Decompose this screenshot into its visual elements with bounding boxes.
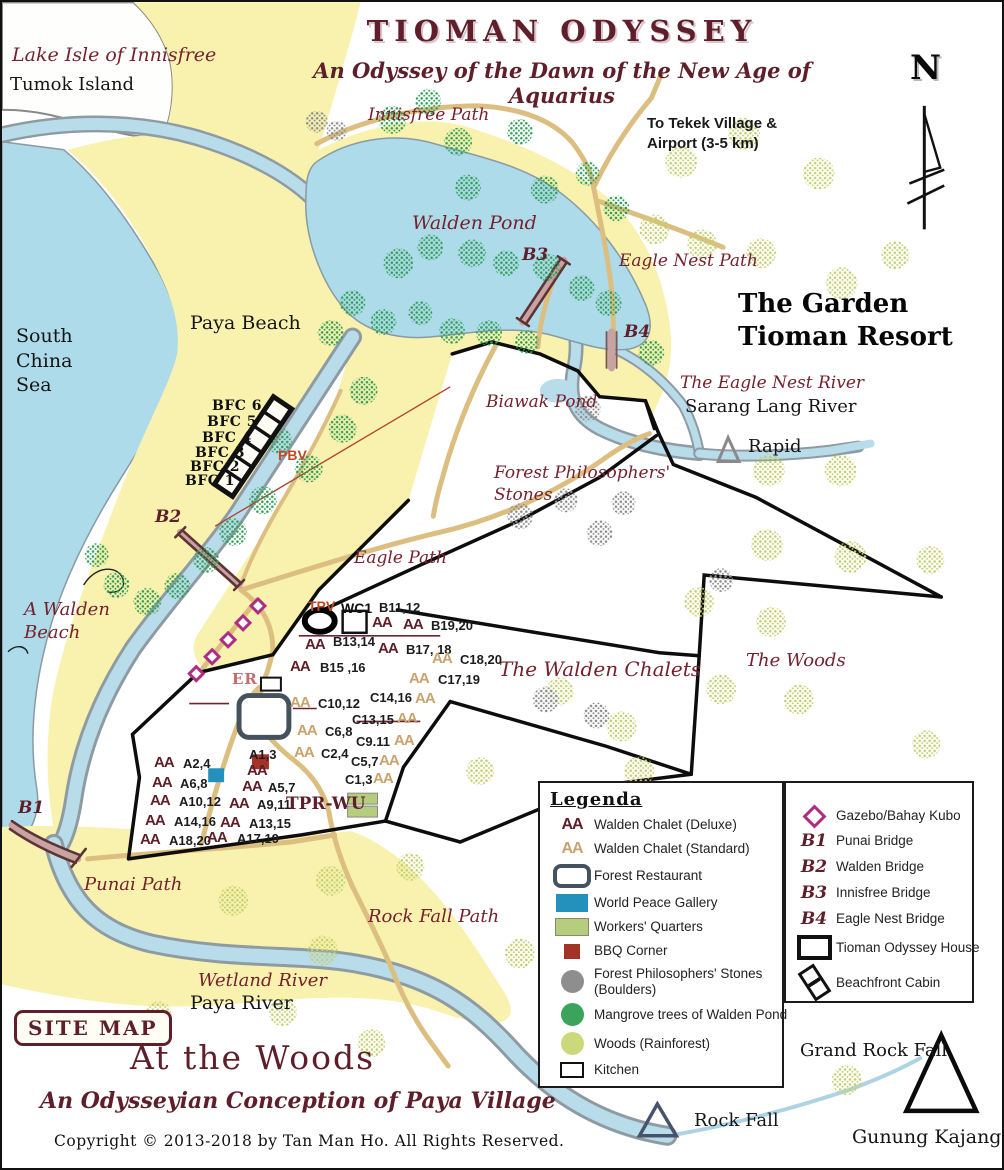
legend-label: Walden Chalet (Deluxe) — [594, 817, 737, 833]
world-peace-gallery-icon — [208, 768, 224, 782]
forest-restaurant-icon — [239, 696, 289, 738]
legend-label: BBQ Corner — [594, 943, 668, 959]
boulder-icon — [561, 970, 584, 993]
legend-item-deluxe-chalet: AAWalden Chalet (Deluxe) — [550, 816, 776, 834]
woods-icon — [561, 1032, 584, 1055]
legend-box: Legenda AAWalden Chalet (Deluxe)AAWalden… — [538, 781, 784, 1088]
legend-item-standard-chalet: AAWalden Chalet (Standard) — [550, 840, 776, 858]
standard-chalet-icon: AA — [561, 840, 582, 858]
legend-item-forest-restaurant: Forest Restaurant — [550, 864, 776, 888]
legend-item-world-peace-gallery: World Peace Gallery — [550, 894, 776, 912]
legend-label: Eagle Nest Bridge — [836, 911, 945, 927]
wc1-icon — [343, 611, 367, 633]
legend-label: Tioman Odyssey House — [836, 940, 980, 956]
legend-bridges-box: Gazebo/Bahay KuboB1Punai BridgeB2Walden … — [784, 781, 974, 1003]
footer-subheading: An Odysseyian Conception of Paya Village — [40, 1088, 556, 1114]
bridge-key-b3: B3 — [792, 883, 836, 903]
legend-item-b3: B3Innisfree Bridge — [792, 883, 968, 903]
legend-item-odyssey-house: Tioman Odyssey House — [792, 935, 968, 960]
map-title: TIOMAN ODYSSEY — [342, 14, 782, 48]
bbq-corner-icon — [252, 754, 269, 769]
forest-restaurant-icon — [553, 864, 591, 888]
legend-label: Mangrove trees of Walden Pond — [594, 1007, 787, 1023]
bridge-key-b4: B4 — [792, 909, 836, 929]
legend-item-bbq-corner: BBQ Corner — [550, 942, 776, 960]
legend-label: Forest Restaurant — [594, 868, 702, 884]
legend-item-b2: B2Walden Bridge — [792, 857, 968, 877]
odyssey-house-icon — [797, 935, 832, 960]
legend-label: Innisfree Bridge — [836, 885, 931, 901]
legend-label: Beachfront Cabin — [836, 975, 940, 991]
legend-item-gazebo: Gazebo/Bahay Kubo — [792, 807, 968, 825]
legend-label: World Peace Gallery — [594, 895, 718, 911]
legend-item-b1: B1Punai Bridge — [792, 831, 968, 851]
legend-label: Gazebo/Bahay Kubo — [836, 808, 961, 824]
bbq-corner-icon — [564, 944, 580, 959]
kitchen-icon — [261, 678, 281, 691]
legend-heading: Legenda — [550, 789, 776, 810]
tioman-odyssey-site-map: Lake Isle of InnisfreeTumok IslandInnisf… — [0, 0, 1004, 1170]
legend-bridge-items: Gazebo/Bahay KuboB1Punai BridgeB2Walden … — [792, 807, 968, 999]
bridge-b4-shape — [607, 332, 617, 368]
legend-item-workers-quarters: Workers' Quarters — [550, 918, 776, 936]
deluxe-chalet-icon: AA — [561, 816, 582, 834]
gazebo-icon — [802, 804, 826, 828]
bridge-key-b2: B2 — [792, 857, 836, 877]
legend-items: AAWalden Chalet (Deluxe)AAWalden Chalet … — [550, 816, 776, 1079]
legend-item-beachfront-cabin: Beachfront Cabin — [792, 966, 968, 999]
legend-item-b4: B4Eagle Nest Bridge — [792, 909, 968, 929]
legend-label: Punai Bridge — [836, 833, 913, 849]
mangrove-icon — [561, 1003, 584, 1026]
beachfront-cabin-icon — [797, 963, 831, 1001]
footer-heading: At the Woods — [130, 1038, 375, 1077]
world-peace-gallery-icon — [556, 894, 588, 912]
legend-label: Workers' Quarters — [594, 919, 703, 935]
legend-item-woods: Woods (Rainforest) — [550, 1032, 776, 1055]
legend-label: Walden Bridge — [836, 859, 924, 875]
tioman-odyssey-house-icon — [305, 610, 335, 632]
biawak-pond-shape — [540, 379, 576, 403]
map-subtitle: An Odyssey of the Dawn of the New Age of… — [292, 58, 832, 108]
bridge-key-b1: B1 — [792, 831, 836, 851]
legend-label: Kitchen — [594, 1062, 639, 1078]
legend-item-mangrove: Mangrove trees of Walden Pond — [550, 1003, 776, 1026]
legend-item-kitchen: Kitchen — [550, 1061, 776, 1079]
copyright-text: Copyright © 2013-2018 by Tan Man Ho. All… — [54, 1132, 564, 1150]
kitchen-icon — [560, 1062, 584, 1078]
legend-label: Walden Chalet (Standard) — [594, 841, 750, 857]
legend-label: Woods (Rainforest) — [594, 1036, 710, 1052]
legend-item-boulder: Forest Philosophers' Stones (Boulders) — [550, 966, 776, 997]
workers-quarters-icon — [555, 918, 589, 936]
legend-label: Forest Philosophers' Stones (Boulders) — [594, 966, 776, 997]
